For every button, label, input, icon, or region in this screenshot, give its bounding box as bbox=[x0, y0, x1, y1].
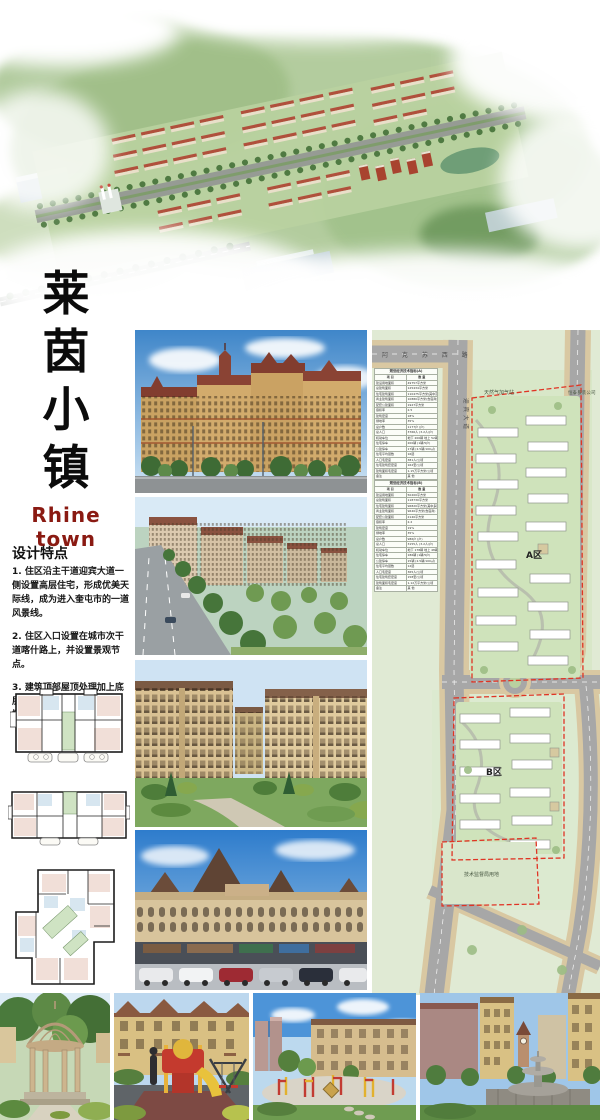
photo-gazebo-image bbox=[0, 993, 110, 1120]
siteplan-indicator-table-b: 规划经济技术指标(B) 项 目数 量建设用地面积50200平方米总建筑面积118… bbox=[374, 480, 438, 592]
photo-street-aerial-image bbox=[135, 497, 367, 655]
gas-station-label: 天然气加气站 bbox=[484, 389, 514, 396]
floorplan-2-image bbox=[8, 786, 130, 852]
title-char: 小 bbox=[0, 382, 132, 440]
photo-playground-image bbox=[114, 993, 249, 1120]
title-char: 镇 bbox=[0, 440, 132, 498]
floorplan-1-image bbox=[10, 686, 128, 776]
tech-bureau-label: 技术监督局用地 bbox=[464, 871, 499, 878]
floorplan-3-image bbox=[8, 864, 122, 994]
presentation-board: 莱 茵 小 镇 Rhine town 设计特点 1. 住区沿主干道迎宾大道一侧设… bbox=[0, 0, 600, 1120]
photo-highrise-image bbox=[135, 330, 367, 493]
road-label-main: 迎宾大道 bbox=[462, 398, 470, 432]
siteplan-indicator-table-a: 规划经济技术指标(A) 项 目数 量建设用地面积49757平方米总建筑面积125… bbox=[374, 368, 438, 480]
photo-fountain-image bbox=[420, 993, 600, 1120]
siteplan-map: 阿 克 苏 西 路 迎宾大道 天然气加气站 恒泰服装公司 A区 B区 技术监督局… bbox=[372, 330, 600, 995]
photo-midrise-image bbox=[135, 660, 367, 827]
design-feature-item: 2. 住区入口设置在城市次干道喀什路上，并设置景观节点。 bbox=[12, 631, 131, 673]
zone-a-label: A区 bbox=[526, 550, 542, 561]
company-label: 恒泰服装公司 bbox=[568, 389, 596, 396]
road-label-top: 阿 克 苏 西 路 bbox=[382, 351, 474, 359]
project-title-vertical: 莱 茵 小 镇 bbox=[0, 266, 132, 498]
design-features-heading: 设计特点 bbox=[12, 543, 68, 563]
photo-fitness-plaza-image bbox=[253, 993, 416, 1120]
title-char: 茵 bbox=[0, 324, 132, 382]
zone-b-label: B区 bbox=[486, 767, 502, 778]
photo-commercial-image bbox=[135, 830, 367, 990]
design-feature-item: 1. 住区沿主干道迎宾大道一侧设置高层住宅，形成优美天际线，成为进入奎屯市的一道… bbox=[12, 566, 131, 622]
title-char: 莱 bbox=[0, 266, 132, 324]
